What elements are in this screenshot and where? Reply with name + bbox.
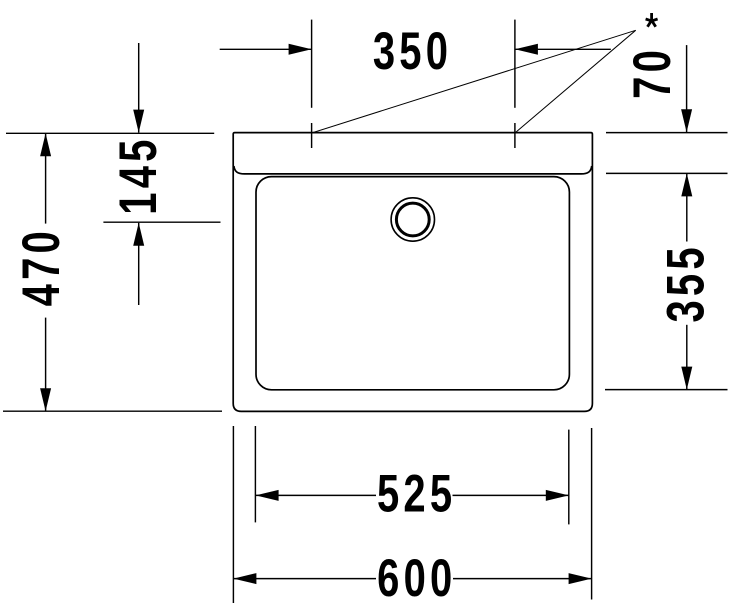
svg-text:145: 145 <box>107 135 167 214</box>
svg-text:525: 525 <box>377 463 456 523</box>
svg-text:70: 70 <box>621 46 681 99</box>
svg-text:350: 350 <box>373 20 452 80</box>
svg-text:470: 470 <box>11 227 71 306</box>
svg-text:355: 355 <box>655 243 715 322</box>
svg-text:600: 600 <box>377 547 456 607</box>
